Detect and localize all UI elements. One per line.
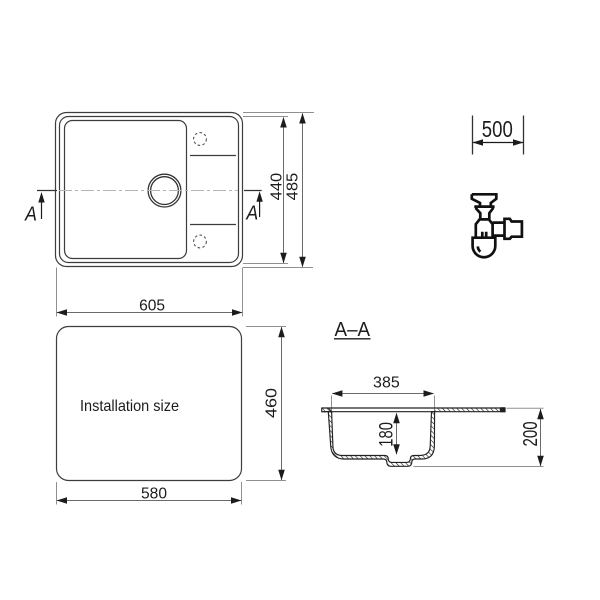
svg-text:605: 605 <box>139 297 165 314</box>
svg-text:385: 385 <box>373 375 400 392</box>
svg-text:460: 460 <box>263 388 280 418</box>
svg-text:A: A <box>246 203 259 225</box>
svg-text:500: 500 <box>482 116 513 142</box>
svg-text:Installation size: Installation size <box>80 398 179 415</box>
svg-text:485: 485 <box>285 173 302 201</box>
svg-text:A–A: A–A <box>335 318 371 341</box>
svg-text:200: 200 <box>520 421 542 446</box>
svg-text:180: 180 <box>376 422 397 447</box>
svg-text:580: 580 <box>141 486 167 503</box>
svg-text:440: 440 <box>268 173 285 201</box>
svg-text:A: A <box>24 203 37 225</box>
